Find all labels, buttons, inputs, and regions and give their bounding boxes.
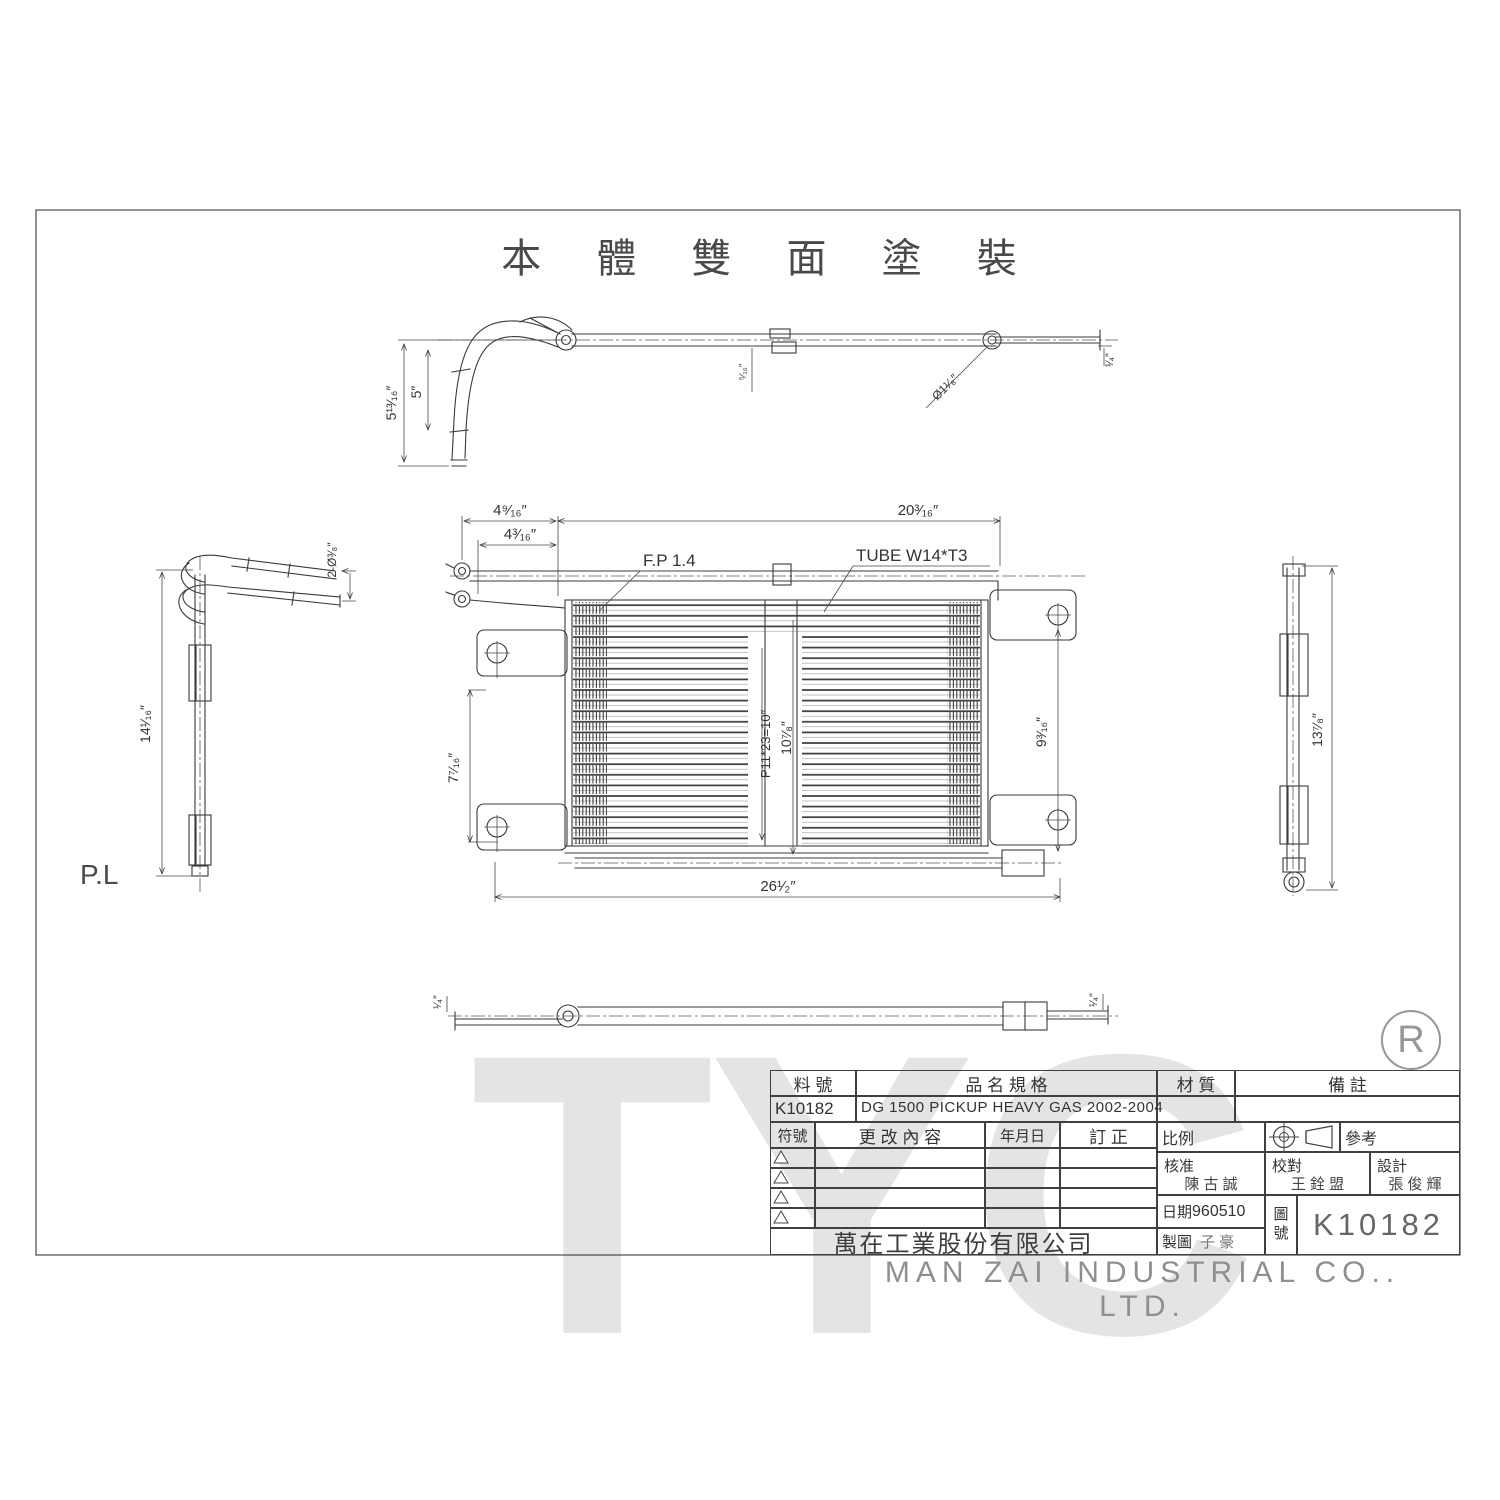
drawn-by: 子 豪 bbox=[1192, 1231, 1234, 1252]
rev-row-content bbox=[815, 1148, 985, 1168]
rev-row-date bbox=[985, 1168, 1060, 1188]
checked-by: 王 銓 盟 bbox=[1266, 1173, 1369, 1194]
dim-front-overall-width: 26¹⁄₂″ bbox=[760, 878, 796, 895]
drawing-no-value: K10182 bbox=[1297, 1195, 1460, 1255]
rev-header-correction: 訂 正 bbox=[1060, 1122, 1157, 1148]
drawing-title: 本 體 雙 面 塗 裝 bbox=[501, 237, 1039, 281]
rev-header-content: 更 改 內 容 bbox=[815, 1122, 985, 1148]
projection-symbol-cell bbox=[1265, 1122, 1340, 1152]
bottom-view: ¹⁄₄″ ¹⁄₄″ bbox=[432, 993, 1118, 1030]
revision-triangle-icon bbox=[773, 1149, 789, 1170]
date-value: 960510 bbox=[1192, 1203, 1245, 1221]
designed-by: 張 俊 輝 bbox=[1371, 1173, 1459, 1194]
rev-row-correction bbox=[1060, 1148, 1157, 1168]
parting-line-label: P.L bbox=[80, 859, 118, 890]
rev-row-symbol bbox=[770, 1148, 815, 1168]
approved-by: 陳 古 誠 bbox=[1158, 1173, 1264, 1194]
date-label: 日期 bbox=[1158, 1201, 1192, 1222]
dim-left-height: 14¹⁄₁₆″ bbox=[137, 705, 153, 743]
rev-row-symbol bbox=[770, 1188, 815, 1208]
drawn-cell: 製圖 子 豪 bbox=[1157, 1228, 1265, 1255]
rev-row-symbol bbox=[770, 1208, 815, 1228]
company-name-cn: 萬在工業股份有限公司 bbox=[770, 1228, 1157, 1255]
fin-pitch-label: F.P 1.4 bbox=[643, 551, 696, 570]
dim-left-holes: 2-Ø³⁄₈″ bbox=[325, 542, 339, 578]
header-part-no: 料 號 bbox=[770, 1070, 856, 1096]
drawn-label: 製圖 bbox=[1158, 1231, 1192, 1252]
company-name-en: MAN ZAI INDUSTRIAL CO.. LTD. bbox=[850, 1256, 1435, 1324]
engineering-drawing-sheet: TYC 本 體 雙 面 塗 裝 bbox=[0, 0, 1500, 1500]
scale-cell: 比例 bbox=[1157, 1122, 1265, 1152]
dim-top-tube-end: ¹⁄₄″ bbox=[1104, 353, 1116, 367]
registered-trademark-icon: R bbox=[1381, 1010, 1441, 1070]
rev-row-content bbox=[815, 1168, 985, 1188]
rev-row-symbol bbox=[770, 1168, 815, 1188]
dim-front-offset-inner: 4³⁄₁₆″ bbox=[504, 526, 537, 543]
header-name-spec: 品 名 規 格 bbox=[856, 1070, 1157, 1096]
header-remarks: 備 註 bbox=[1235, 1070, 1460, 1096]
dim-bottom-right-end: ¹⁄₄″ bbox=[1088, 993, 1100, 1007]
rev-row-content bbox=[815, 1188, 985, 1208]
dim-front-core-height: 10⁷⁄₈″ bbox=[778, 721, 794, 755]
reference-cell: 參考 bbox=[1340, 1122, 1460, 1152]
spec-value: DG 1500 PICKUP HEAVY GAS 2002-2004 bbox=[856, 1096, 1157, 1122]
dim-top-inner-drop: 5″ bbox=[408, 386, 424, 399]
dim-front-core-width: 20³⁄₁₆″ bbox=[898, 502, 939, 519]
rev-header-date: 年月日 bbox=[985, 1122, 1060, 1148]
dim-bottom-left-end: ¹⁄₄″ bbox=[432, 995, 444, 1009]
remarks-value bbox=[1235, 1096, 1460, 1122]
drawing-no-label-cell: 圖 號 bbox=[1265, 1195, 1297, 1255]
part-no-value: K10182 bbox=[770, 1096, 856, 1122]
material-value bbox=[1157, 1096, 1235, 1122]
checked-cell: 校對 王 銓 盟 bbox=[1265, 1152, 1370, 1195]
dim-front-offset-outer: 4⁹⁄₁₆″ bbox=[493, 502, 527, 519]
dim-top-hole-dia: Ø1¹⁄₈″ bbox=[929, 371, 962, 404]
tube-spec-label: TUBE W14*T3 bbox=[856, 546, 967, 565]
revision-triangle-icon bbox=[773, 1189, 789, 1210]
dim-top-overall-drop: 5¹³⁄₁₆″ bbox=[383, 386, 399, 421]
left-side-view: 14¹⁄₁₆″ 2-Ø³⁄₈″ P.L bbox=[80, 542, 356, 892]
dim-front-tube-pitch: P11*23=10″ bbox=[758, 709, 773, 778]
approved-cell: 核准 陳 古 誠 bbox=[1157, 1152, 1265, 1195]
rev-row-date bbox=[985, 1148, 1060, 1168]
designed-cell: 設計 張 俊 輝 bbox=[1370, 1152, 1460, 1195]
dim-top-clamp: ⁵⁄₁₆″ bbox=[738, 363, 749, 380]
dim-front-left-height: 7⁷⁄₁₆″ bbox=[445, 753, 461, 784]
rev-row-correction bbox=[1060, 1188, 1157, 1208]
revision-triangle-icon bbox=[773, 1169, 789, 1190]
front-view: F.P 1.4 TUBE W14*T3 4⁹⁄₁₆″ 4³⁄₁₆″ 20³⁄₁₆… bbox=[445, 502, 1085, 902]
header-material: 材 質 bbox=[1157, 1070, 1235, 1096]
right-side-view: 13⁷⁄₈″ bbox=[1280, 556, 1338, 896]
revision-triangle-icon bbox=[773, 1209, 789, 1230]
top-view: 5¹³⁄₁₆″ 5″ ⁵⁄₁₆″ Ø1¹⁄₈″ ¹⁄₄″ bbox=[383, 317, 1118, 466]
drawing-no-label-bottom: 號 bbox=[1273, 1225, 1288, 1244]
drawing-no-label-top: 圖 bbox=[1273, 1206, 1288, 1225]
dim-front-right-height: 9³⁄₁₆″ bbox=[1033, 717, 1049, 747]
rev-header-symbol: 符號 bbox=[770, 1122, 815, 1148]
dim-right-height: 13⁷⁄₈″ bbox=[1309, 713, 1325, 747]
rev-row-date bbox=[985, 1188, 1060, 1208]
date-cell: 日期 960510 bbox=[1157, 1195, 1265, 1228]
first-angle-projection-icon bbox=[1268, 1123, 1338, 1151]
rev-row-correction bbox=[1060, 1168, 1157, 1188]
